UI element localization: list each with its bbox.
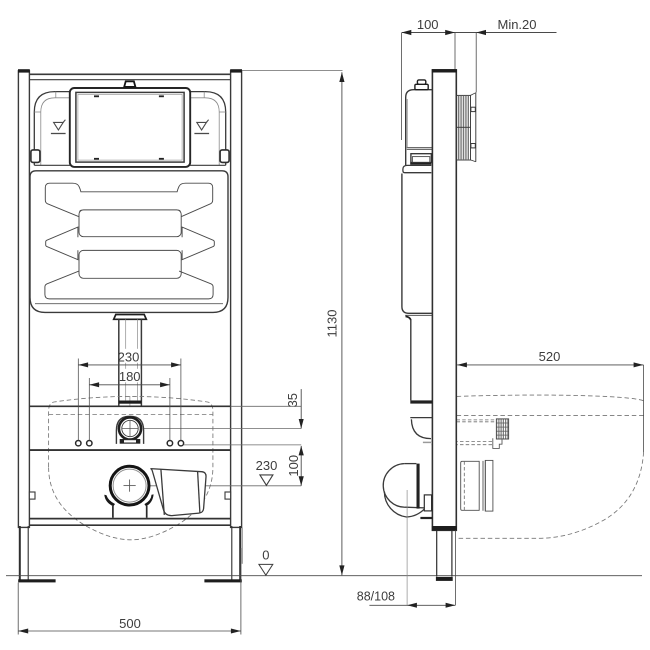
svg-text:88/108: 88/108 [357,589,395,603]
svg-text:100: 100 [286,455,301,477]
svg-text:35: 35 [285,393,300,407]
svg-text:520: 520 [539,349,561,364]
svg-text:230: 230 [118,349,140,364]
svg-text:100: 100 [417,17,439,32]
svg-text:230: 230 [256,458,278,473]
svg-text:Min.20: Min.20 [497,17,536,32]
svg-text:500: 500 [119,616,141,631]
svg-text:0: 0 [262,548,269,563]
svg-text:1130: 1130 [324,310,339,338]
svg-text:180: 180 [119,369,141,384]
